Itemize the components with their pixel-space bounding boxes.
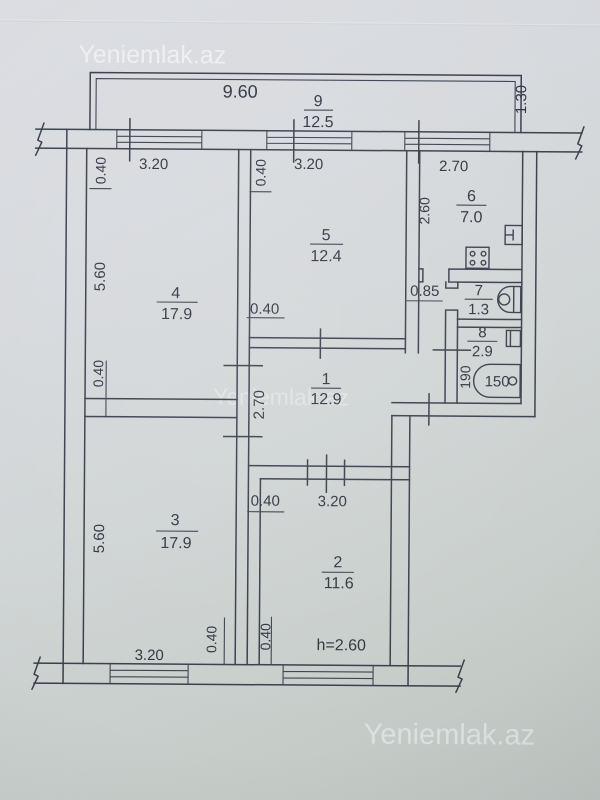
- interior-walls: [83, 149, 523, 687]
- kitchen-sink-icon: [505, 225, 522, 244]
- dim-wall-040-room2-top: 0.40: [251, 493, 280, 510]
- dim-wall-040-mid: 0.40: [250, 301, 279, 318]
- room4-number: 4: [171, 285, 180, 302]
- break-top-right: [576, 127, 584, 159]
- dimension-labels: 9.60 1.30 0.40 3.20 0.40 3.20 2.70 2.60 …: [88, 81, 530, 667]
- dim-bathtub-size: 150: [485, 373, 510, 390]
- dim-room5-window: 3.20: [294, 156, 323, 173]
- dim-room3-window: 3.20: [135, 647, 164, 664]
- room5-area: 12.4: [310, 248, 341, 265]
- room2-number: 2: [333, 554, 342, 571]
- washbasin-icon: [506, 330, 520, 346]
- dim-room4-height: 5.60: [92, 262, 109, 291]
- dim-wall-040-room5-top: 0.40: [252, 159, 268, 187]
- toilet-icon: [498, 286, 521, 312]
- room6-area: 7.0: [460, 209, 482, 226]
- window-room3: [110, 664, 188, 685]
- room7-area: 1.3: [468, 301, 489, 318]
- room7-number: 7: [475, 282, 483, 299]
- dim-hall-width: 2.70: [251, 390, 268, 419]
- dim-room3-height: 5.60: [91, 524, 108, 553]
- room3-number: 3: [171, 512, 180, 529]
- break-top-left: [36, 123, 44, 155]
- room6-number: 6: [467, 188, 476, 205]
- room3-area: 17.9: [160, 535, 191, 552]
- dim-wall-040-bottom-a: 0.40: [203, 625, 219, 653]
- dim-wall-040-left: 0.40: [90, 360, 106, 388]
- dim-kitchen-window: 2.70: [439, 158, 468, 175]
- window-room5: [267, 131, 352, 151]
- room9-area: 12.5: [302, 114, 333, 131]
- dim-ceiling-height: h=2.60: [317, 637, 367, 654]
- dimension-leaders: [86, 189, 443, 666]
- break-bottom-left: [32, 657, 40, 689]
- watermark-bottom: Yeniemlak.az: [364, 718, 536, 751]
- watermarks: Yeniemlak.az Yeniemlak.az Yeniemlak.az: [74, 40, 540, 751]
- dim-wall-040-room4-top: 0.40: [93, 157, 109, 185]
- room5-number: 5: [322, 227, 331, 244]
- dim-balcony-depth: 1.30: [513, 85, 530, 114]
- dim-bath-length: 190: [457, 365, 473, 389]
- room2-area: 11.6: [324, 575, 354, 592]
- dim-balcony-length: 9.60: [223, 81, 258, 101]
- room8-number: 8: [478, 324, 486, 341]
- room1-area: 12.9: [310, 391, 341, 408]
- dim-room2-width: 3.20: [318, 493, 347, 510]
- stove-icon: [466, 247, 489, 268]
- window-ticks-top: [130, 119, 419, 163]
- break-bottom-right: [456, 660, 464, 692]
- window-kitchen: [405, 132, 490, 152]
- floorplan-photo: Yeniemlak.az Yeniemlak.az Yeniemlak.az: [0, 0, 600, 800]
- room8-area: 2.9: [472, 343, 493, 360]
- room9-number: 9: [314, 93, 323, 110]
- room4-area: 17.9: [161, 306, 192, 323]
- dim-wall-040-bottom-b: 0.40: [257, 623, 273, 651]
- windows-bottom: [110, 664, 373, 686]
- dim-room4-window: 3.20: [139, 156, 168, 173]
- dim-kitchen-depth: 2.60: [416, 197, 432, 225]
- dim-entry-width: 0.85: [410, 283, 439, 300]
- watermark-top: Yeniemlak.az: [78, 40, 226, 69]
- window-room2: [283, 665, 373, 686]
- floorplan-svg: Yeniemlak.az Yeniemlak.az Yeniemlak.az: [0, 0, 600, 800]
- room1-number: 1: [322, 371, 331, 388]
